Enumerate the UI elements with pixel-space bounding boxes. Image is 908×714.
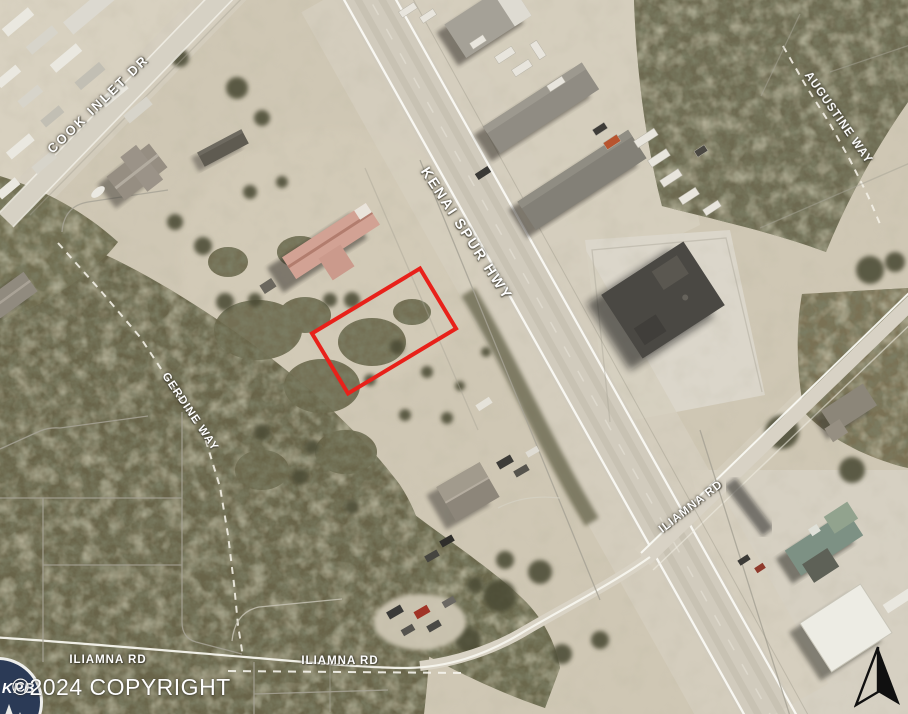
copyright-watermark: ©2024 COPYRIGHT bbox=[12, 674, 231, 701]
road-label-iliamna-rd-west-2: ILIAMNA RD bbox=[301, 655, 378, 667]
north-arrow-icon bbox=[854, 645, 902, 709]
aerial-imagery bbox=[0, 0, 908, 714]
road-label-iliamna-rd-west-1: ILIAMNA RD bbox=[69, 654, 146, 666]
map-canvas[interactable]: COOK INLET DR KENAI SPUR HWY AUGUSTINE W… bbox=[0, 0, 908, 714]
evergreen-tree-icon bbox=[4, 704, 14, 714]
